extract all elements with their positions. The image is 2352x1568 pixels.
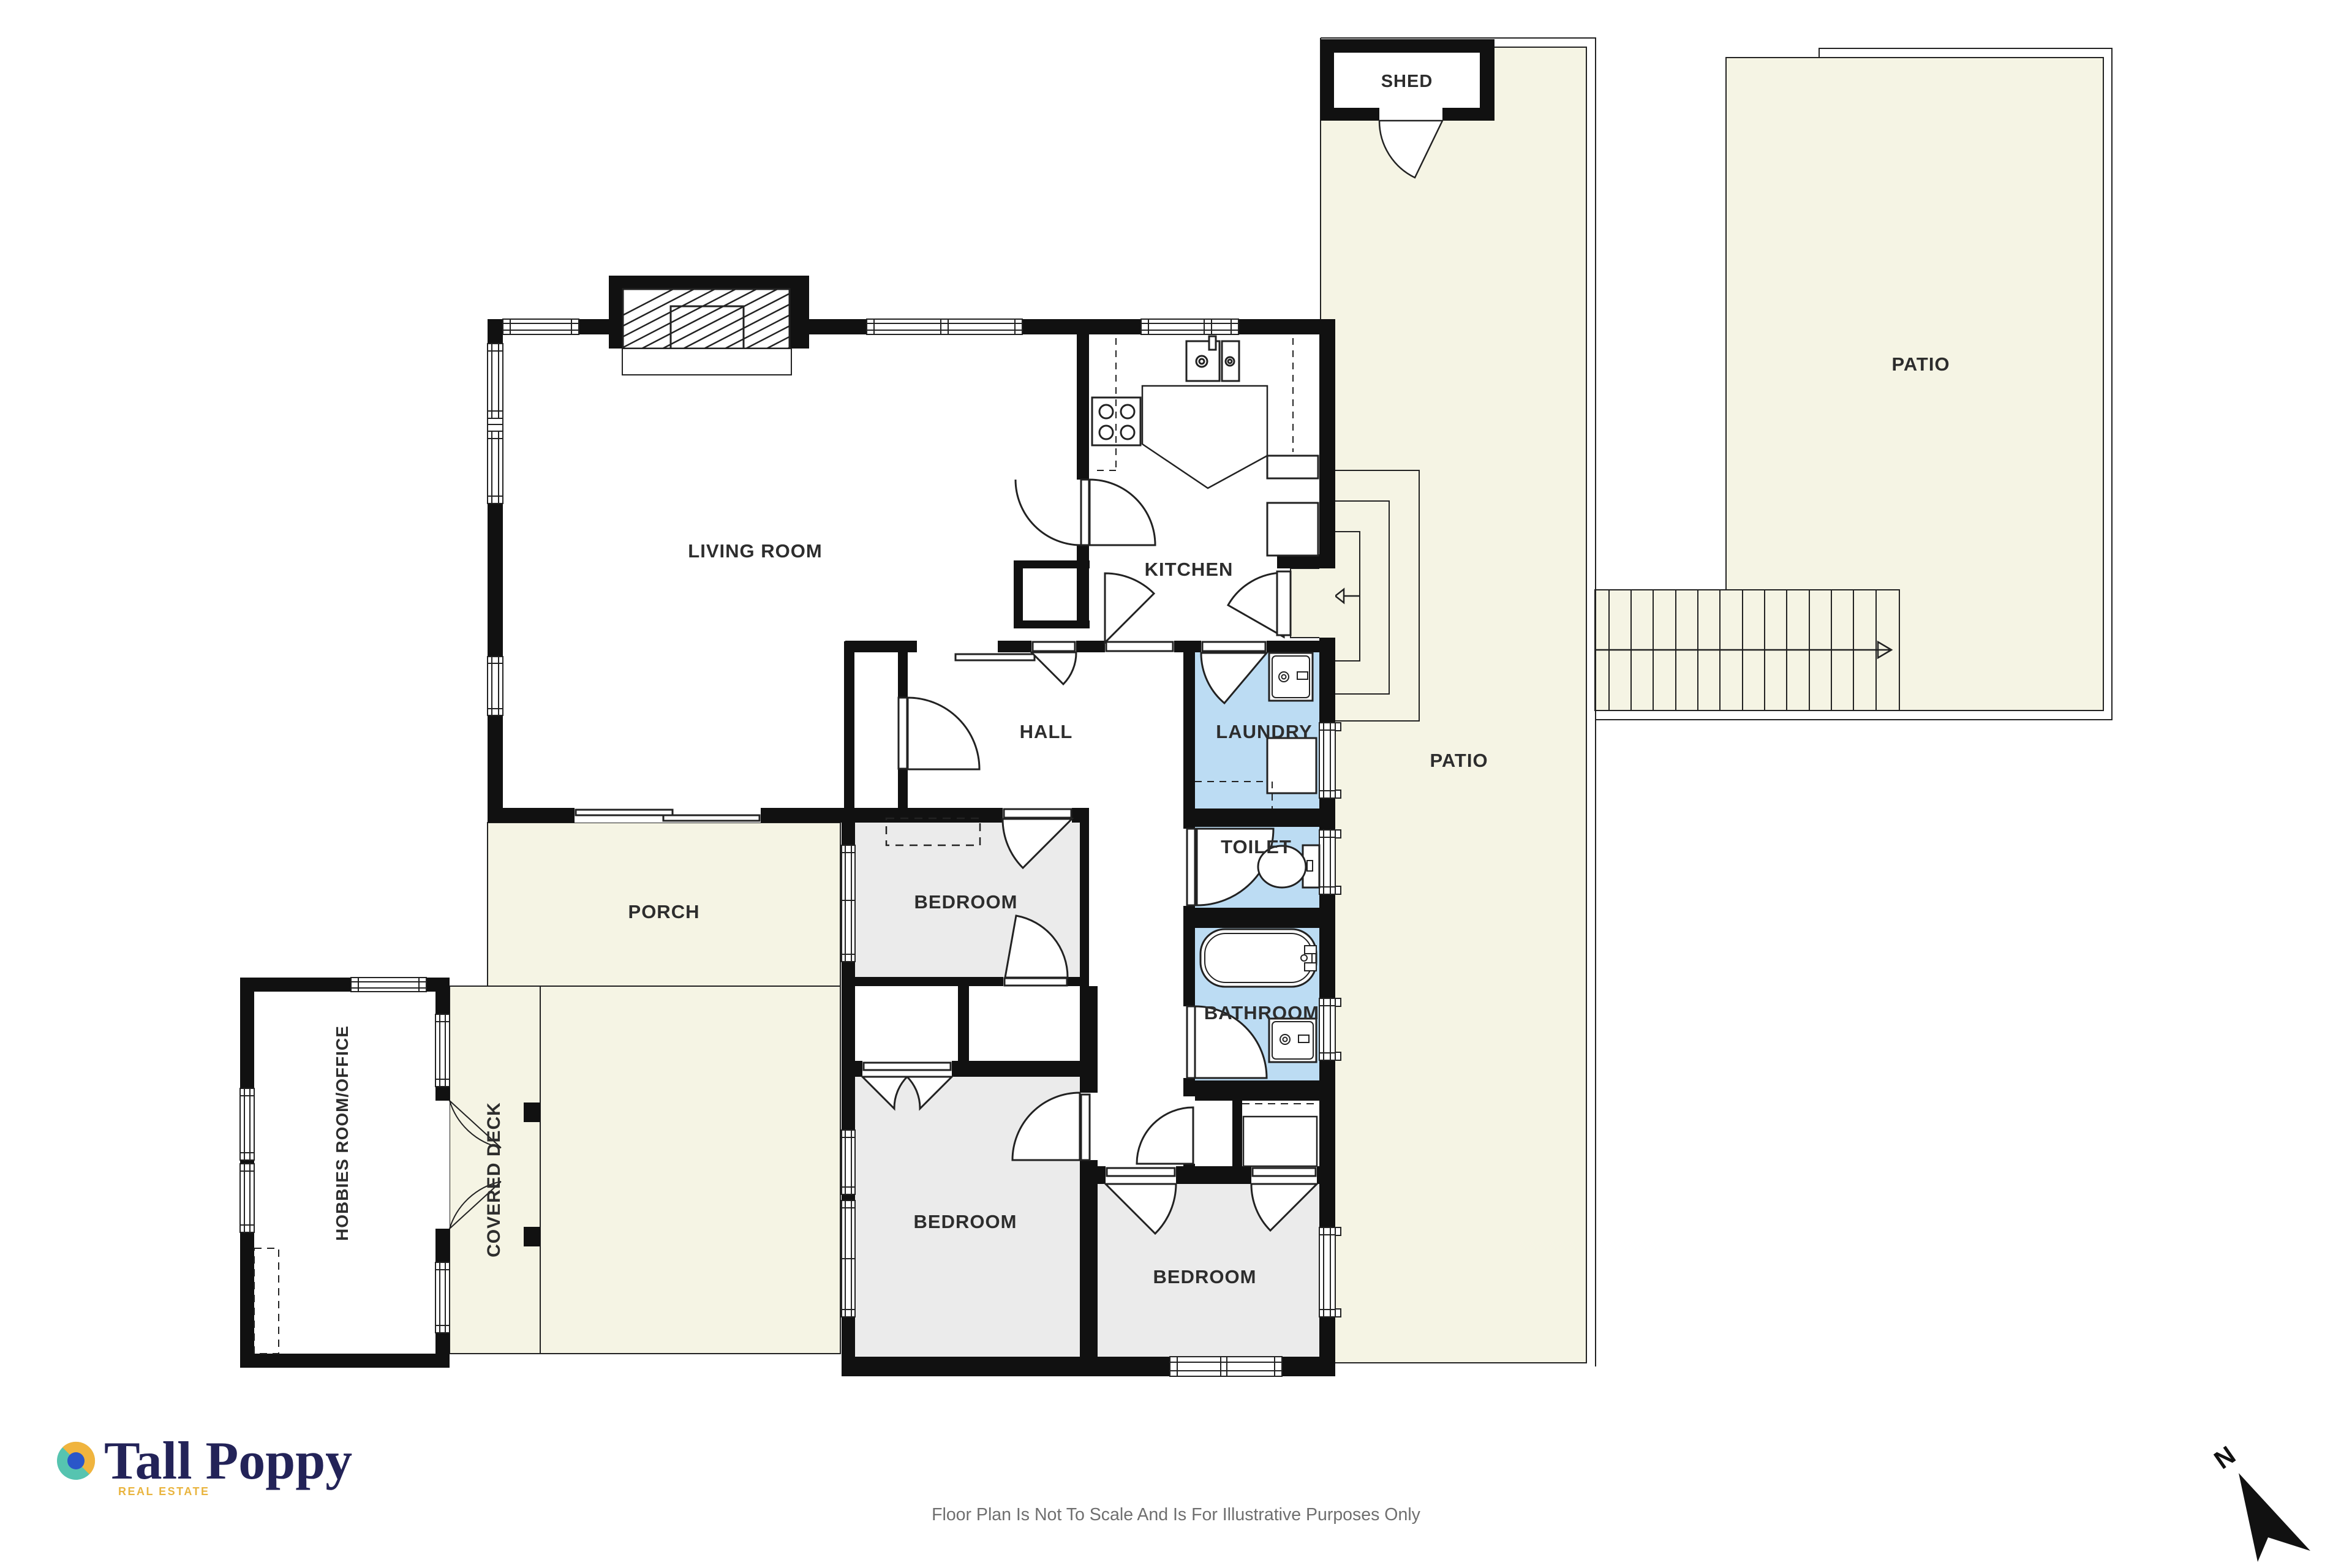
svg-text:BATHROOM: BATHROOM [1204, 1002, 1319, 1023]
svg-text:KITCHEN: KITCHEN [1145, 559, 1234, 580]
svg-text:HALL: HALL [1020, 721, 1073, 742]
svg-text:TOILET: TOILET [1221, 836, 1292, 858]
svg-text:COVERED DECK: COVERED DECK [484, 1102, 504, 1257]
svg-text:Tall Poppy: Tall Poppy [104, 1431, 352, 1491]
svg-text:BEDROOM: BEDROOM [914, 891, 1018, 913]
svg-text:HOBBIES ROOM/OFFICE: HOBBIES ROOM/OFFICE [333, 1025, 352, 1241]
svg-text:BEDROOM: BEDROOM [1153, 1266, 1257, 1287]
svg-text:PORCH: PORCH [628, 901, 700, 922]
svg-text:LAUNDRY: LAUNDRY [1216, 721, 1312, 742]
svg-text:REAL ESTATE: REAL ESTATE [118, 1485, 210, 1498]
svg-text:Floor Plan Is Not To Scale And: Floor Plan Is Not To Scale And Is For Il… [932, 1505, 1421, 1525]
svg-text:PATIO: PATIO [1430, 750, 1488, 771]
svg-text:BEDROOM: BEDROOM [914, 1211, 1017, 1232]
svg-text:LIVING ROOM: LIVING ROOM [688, 540, 822, 562]
svg-text:SHED: SHED [1381, 72, 1433, 91]
svg-text:PATIO: PATIO [1891, 353, 1950, 375]
